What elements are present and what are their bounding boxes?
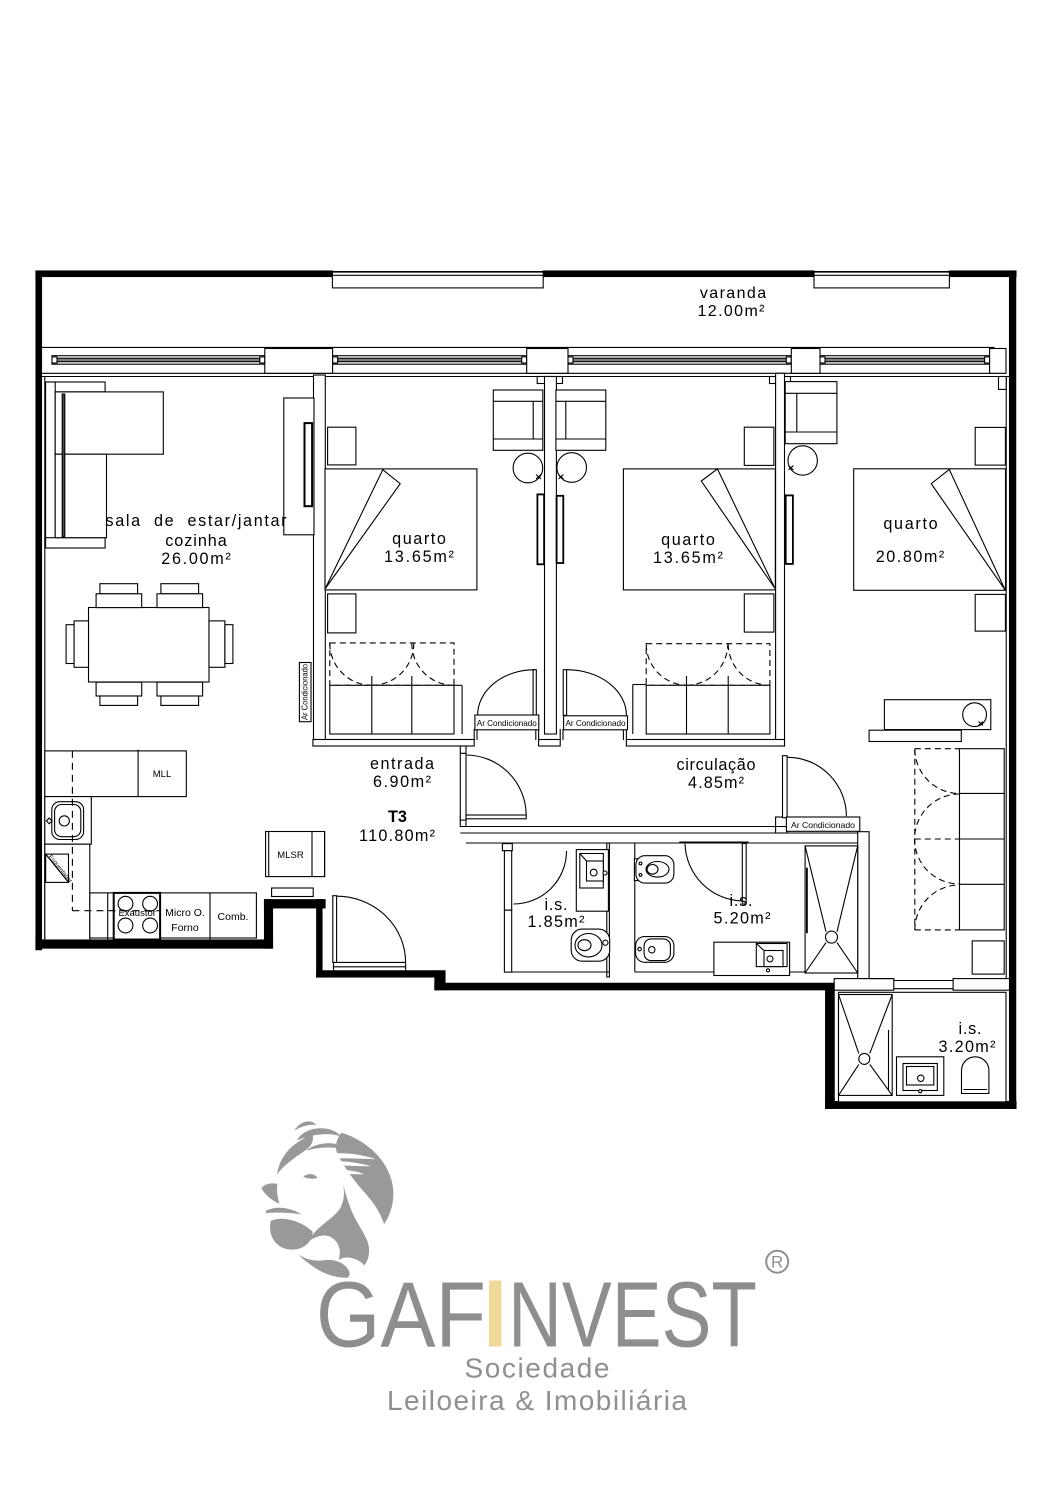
svg-text:sala de estar/jantar: sala de estar/jantar <box>106 512 288 530</box>
svg-text:20.80m²: 20.80m² <box>876 548 945 566</box>
svg-text:varanda: varanda <box>700 285 766 302</box>
svg-text:26.00m²: 26.00m² <box>161 550 231 568</box>
svg-text:13.65m²: 13.65m² <box>384 548 455 566</box>
svg-text:cozinha: cozinha <box>165 532 227 550</box>
svg-text:Forno: Forno <box>171 922 199 934</box>
svg-text:NVEST: NVEST <box>508 1263 757 1367</box>
svg-text:MLL: MLL <box>153 769 171 780</box>
svg-text:5.20m²: 5.20m² <box>714 910 772 928</box>
svg-text:Micro O.: Micro O. <box>165 907 205 919</box>
svg-text:6.90m²: 6.90m² <box>373 773 432 791</box>
svg-text:quarto: quarto <box>883 515 937 533</box>
svg-text:i.s.: i.s. <box>959 1020 982 1038</box>
svg-text:13.65m²: 13.65m² <box>653 549 724 567</box>
svg-text:R: R <box>771 1253 783 1272</box>
svg-text:Ar Condicionado: Ar Condicionado <box>301 664 310 720</box>
svg-text:T3: T3 <box>388 808 407 826</box>
svg-text:quarto: quarto <box>661 531 715 549</box>
svg-text:Leiloeira & Imobiliária: Leiloeira & Imobiliária <box>387 1385 687 1416</box>
svg-text:Ar Condicionado: Ar Condicionado <box>791 820 855 830</box>
svg-text:4.85m²: 4.85m² <box>688 774 745 792</box>
svg-text:Ar Condicionado: Ar Condicionado <box>477 719 537 728</box>
svg-text:Ar Condicionado: Ar Condicionado <box>566 719 626 728</box>
svg-text:entrada: entrada <box>370 755 434 773</box>
svg-text:110.80m²: 110.80m² <box>359 827 436 845</box>
svg-text:Exaustor: Exaustor <box>118 908 156 919</box>
svg-text:i.s.: i.s. <box>730 892 753 910</box>
svg-text:circulação: circulação <box>677 756 756 774</box>
svg-text:quarto: quarto <box>392 530 446 548</box>
svg-text:GAF: GAF <box>316 1263 486 1367</box>
svg-text:1.85m²: 1.85m² <box>528 913 586 931</box>
svg-text:Comb.: Comb. <box>218 911 249 923</box>
svg-text:12.00m²: 12.00m² <box>698 303 766 320</box>
svg-text:Sociedade: Sociedade <box>465 1353 610 1384</box>
svg-text:3.20m²: 3.20m² <box>939 1038 997 1056</box>
svg-text:MLSR: MLSR <box>277 850 304 861</box>
svg-text:i.s.: i.s. <box>545 896 568 914</box>
